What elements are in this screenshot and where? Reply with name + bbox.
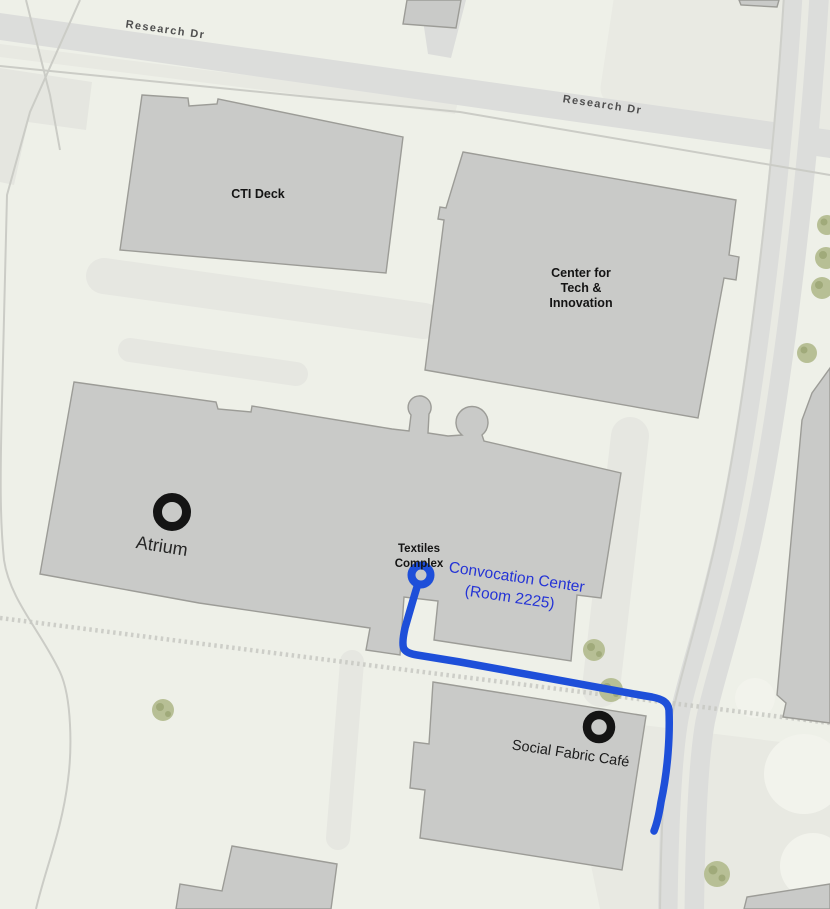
building-label-center-tech-line2: Tech & bbox=[561, 281, 602, 295]
building-label-textiles-line2: Complex bbox=[395, 558, 444, 570]
walkway-area bbox=[338, 662, 352, 838]
building-label-center-tech-line1: Center for bbox=[551, 266, 611, 280]
building-label-cti-deck: CTI Deck bbox=[231, 187, 285, 201]
building-label-textiles-line1: Textiles bbox=[398, 543, 440, 555]
building-fragment-north bbox=[403, 0, 461, 28]
building-label-center-tech-line3: Innovation bbox=[549, 296, 612, 310]
campus-map-canvas: Research Dr Research Dr CTI Deck Center … bbox=[0, 0, 830, 909]
tree bbox=[704, 861, 730, 887]
campus-map: Research Dr Research Dr CTI Deck Center … bbox=[0, 0, 830, 909]
lawn-circle bbox=[735, 678, 775, 718]
tree bbox=[152, 699, 174, 721]
tree bbox=[797, 343, 817, 363]
tree bbox=[583, 639, 605, 661]
building-social-fabric-cafe bbox=[410, 682, 646, 870]
